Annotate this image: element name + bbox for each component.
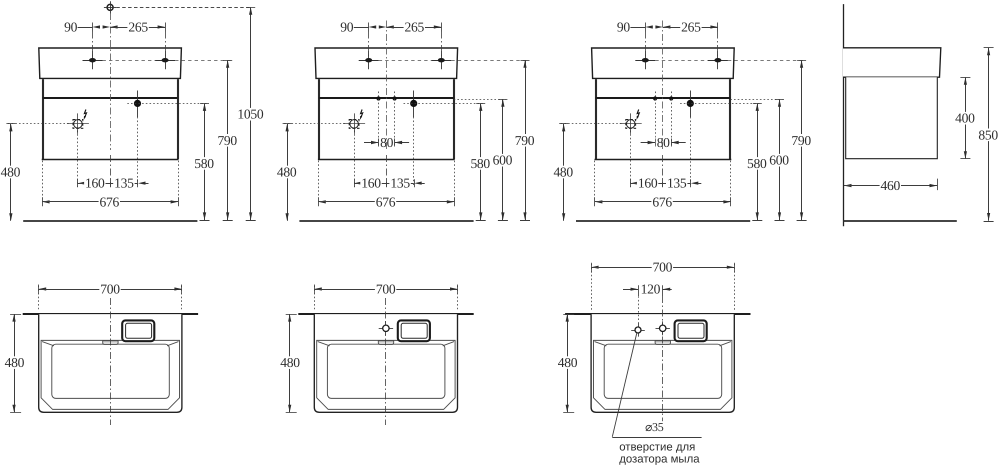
svg-text:790: 790 [791, 133, 811, 148]
svg-text:580: 580 [747, 156, 767, 171]
svg-text:265: 265 [128, 20, 148, 35]
svg-text:676: 676 [652, 194, 672, 209]
svg-text:600: 600 [769, 153, 789, 168]
svg-text:160: 160 [638, 176, 658, 191]
svg-text:135: 135 [390, 176, 410, 191]
svg-text:90: 90 [64, 20, 77, 35]
svg-text:135: 135 [667, 176, 687, 191]
svg-text:676: 676 [376, 194, 396, 209]
svg-text:1050: 1050 [237, 107, 263, 122]
svg-text:120: 120 [641, 282, 661, 297]
svg-text:80: 80 [657, 135, 670, 150]
svg-text:480: 480 [1, 165, 21, 180]
svg-text:460: 460 [881, 178, 901, 193]
svg-text:дозатора мыла: дозатора мыла [619, 453, 700, 465]
svg-text:160: 160 [361, 176, 381, 191]
svg-text:90: 90 [617, 20, 630, 35]
svg-text:480: 480 [280, 355, 300, 370]
svg-text:700: 700 [653, 260, 673, 275]
svg-text:580: 580 [194, 156, 214, 171]
svg-text:⌀35: ⌀35 [645, 420, 664, 434]
svg-text:160: 160 [85, 176, 105, 191]
svg-text:700: 700 [376, 282, 396, 297]
svg-text:90: 90 [340, 20, 353, 35]
svg-text:790: 790 [515, 133, 535, 148]
svg-text:850: 850 [978, 127, 998, 142]
svg-text:480: 480 [5, 355, 25, 370]
svg-text:отверстие для: отверстие для [619, 441, 695, 453]
svg-text:600: 600 [493, 153, 513, 168]
svg-text:790: 790 [217, 133, 237, 148]
svg-text:676: 676 [100, 194, 120, 209]
svg-text:135: 135 [114, 176, 134, 191]
svg-text:700: 700 [100, 282, 120, 297]
svg-text:480: 480 [277, 165, 297, 180]
svg-text:265: 265 [405, 20, 425, 35]
svg-text:400: 400 [955, 111, 975, 126]
svg-text:265: 265 [681, 20, 701, 35]
svg-text:480: 480 [553, 165, 573, 180]
svg-text:580: 580 [470, 156, 490, 171]
svg-text:480: 480 [558, 355, 578, 370]
